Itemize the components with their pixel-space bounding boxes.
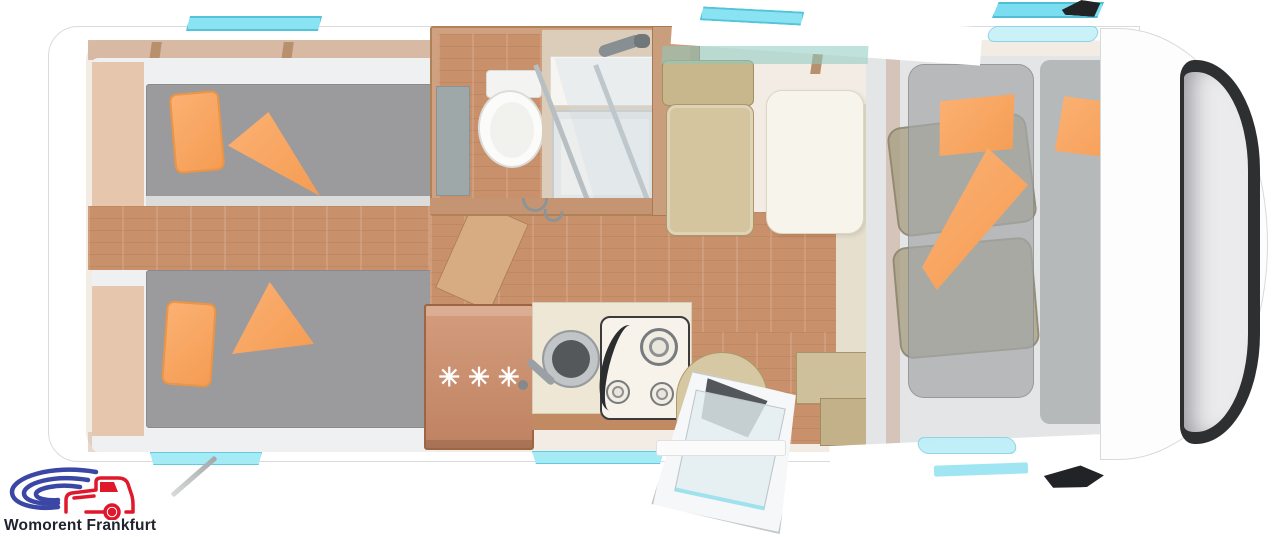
dinette-table [766, 90, 864, 234]
cab-side-window [986, 26, 1100, 42]
brand-text: Womorent Frankfurt [4, 517, 224, 535]
motorhome-floorplan: ✳✳✳ [0, 0, 1280, 537]
side-window [532, 451, 664, 464]
bathroom-mirror [436, 86, 470, 196]
pillow-bottom-bed [161, 300, 217, 387]
freezer-stars-icon: ✳✳✳ [430, 362, 527, 393]
sheet-edge-top [146, 196, 438, 206]
skylight [186, 16, 322, 31]
pillow-cab-bed [937, 94, 1018, 156]
dinette-bench-backrest [662, 60, 754, 106]
shower-head-knob [634, 34, 650, 48]
dinette-bench-cushion [666, 104, 754, 236]
logo-vehicle-icon [0, 460, 170, 520]
stove-burner-small [650, 382, 674, 406]
windshield [1180, 60, 1260, 444]
pillow-top-bed [169, 90, 226, 174]
dinette-window [662, 46, 869, 64]
toilet-seat [490, 102, 534, 158]
entry-threshold [656, 440, 786, 456]
cab-door-window [934, 462, 1028, 476]
headboard-top [92, 62, 144, 208]
side-mirror-icon [1043, 464, 1104, 490]
faucet-knob [518, 380, 528, 390]
refrigerator: ✳✳✳ [424, 304, 534, 450]
cab-side-window [916, 437, 1018, 454]
bedroom-step-floor [88, 206, 440, 270]
stove-burner-large [640, 328, 678, 366]
headboard-bottom [92, 286, 144, 436]
